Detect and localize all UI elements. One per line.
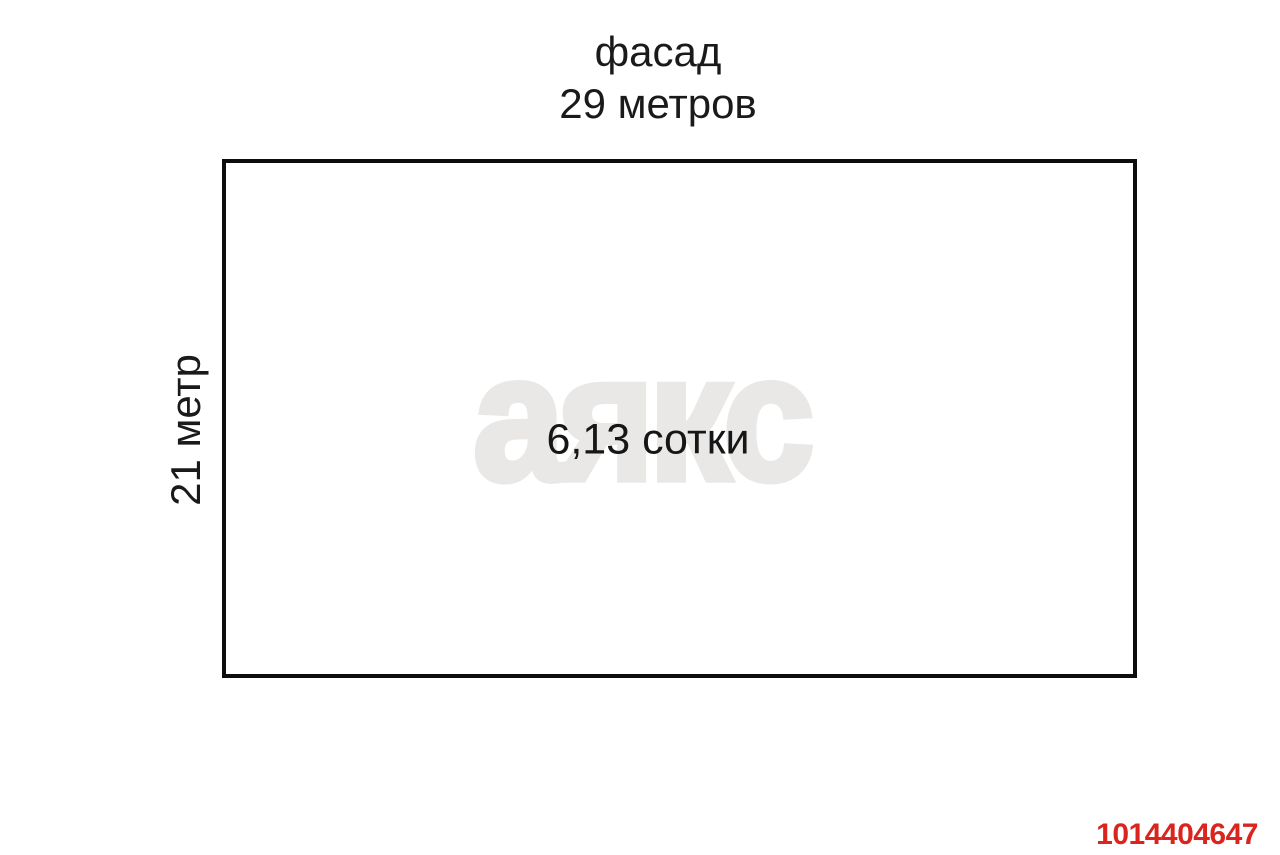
area-label: 6,13 сотки	[546, 416, 749, 465]
facade-label: фасад 29 метров	[559, 26, 757, 130]
facade-title: фасад	[559, 26, 757, 78]
facade-length-label: 29 метров	[559, 78, 757, 130]
listing-id: 1014404647	[1096, 818, 1258, 852]
depth-label: 21 метр	[162, 354, 210, 506]
plot-diagram-canvas: фасад 29 метров 21 метр аякс 6,13 сотки …	[0, 0, 1280, 855]
